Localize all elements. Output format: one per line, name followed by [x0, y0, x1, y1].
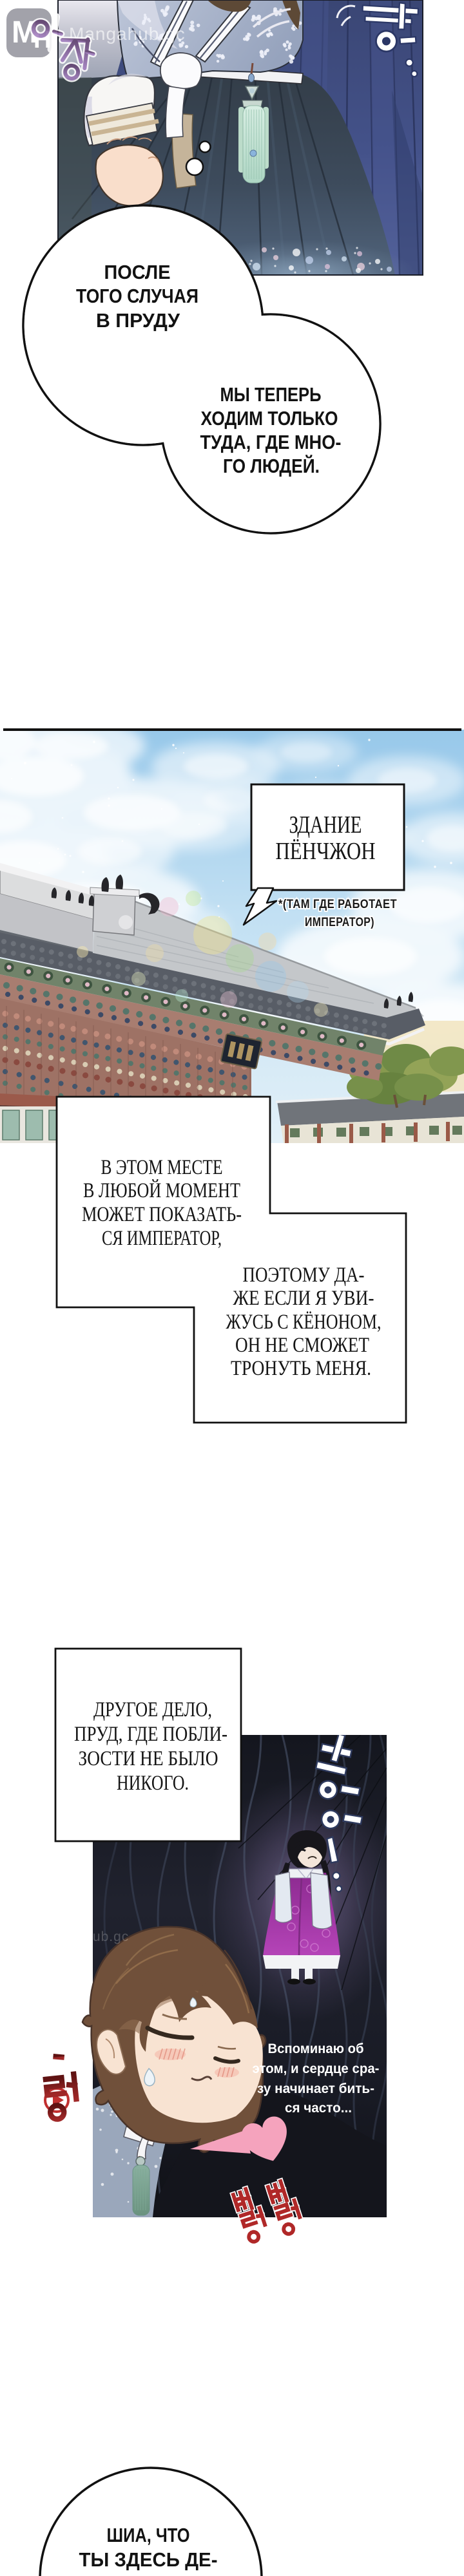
svg-text:*(ТАМ ГДЕ РАБОТАЕТ: *(ТАМ ГДЕ РАБОТАЕТ	[278, 898, 397, 911]
svg-text:ТУДА, ГДЕ МНО-: ТУДА, ГДЕ МНО-	[200, 431, 342, 453]
svg-text:ГО ЛЮДЕЙ.: ГО ЛЮДЕЙ.	[223, 454, 320, 477]
svg-text:МОЖЕТ ПОКАЗАТЬ-: МОЖЕТ ПОКАЗАТЬ-	[82, 1203, 242, 1226]
svg-text:ЖУСЬ С КЁНОНОМ,: ЖУСЬ С КЁНОНОМ,	[226, 1311, 382, 1334]
svg-text:ШИА, ЧТО: ШИА, ЧТО	[107, 2524, 190, 2546]
svg-text:В ЭТОМ МЕСТЕ: В ЭТОМ МЕСТЕ	[101, 1156, 223, 1179]
svg-text:ПРУД, ГДЕ ПОБЛИ-: ПРУД, ГДЕ ПОБЛИ-	[74, 1723, 227, 1746]
svg-text:ПОСЛЕ: ПОСЛЕ	[104, 261, 171, 283]
svg-text:ПОЭТОМУ ДА-: ПОЭТОМУ ДА-	[243, 1264, 365, 1287]
svg-text:НИКОГО.: НИКОГО.	[117, 1772, 189, 1795]
svg-text:ся часто...: ся часто...	[285, 2101, 352, 2116]
svg-text:ТРОНУТЬ МЕНЯ.: ТРОНУТЬ МЕНЯ.	[231, 1357, 371, 1380]
svg-text:ЗОСТИ НЕ БЫЛО: ЗОСТИ НЕ БЫЛО	[79, 1747, 218, 1770]
svg-text:МЫ ТЕПЕРЬ: МЫ ТЕПЕРЬ	[220, 383, 322, 406]
svg-text:Вспоминаю об: Вспоминаю об	[268, 2041, 364, 2056]
svg-text:ДРУГОЕ ДЕЛО,: ДРУГОЕ ДЕЛО,	[93, 1698, 212, 1721]
svg-text:В ЛЮБОЙ МОМЕНТ: В ЛЮБОЙ МОМЕНТ	[83, 1179, 240, 1202]
svg-text:СЯ ИМПЕРАТОР,: СЯ ИМПЕРАТОР,	[102, 1227, 222, 1250]
svg-text:ТЫ ЗДЕСЬ ДЕ-: ТЫ ЗДЕСЬ ДЕ-	[79, 2548, 218, 2571]
svg-text:ХОДИМ ТОЛЬКО: ХОДИМ ТОЛЬКО	[201, 407, 338, 430]
svg-text:В ПРУДУ: В ПРУДУ	[96, 309, 180, 332]
svg-text:Mangahub.gc: Mangahub.gc	[40, 1929, 129, 1944]
svg-text:ТОГО СЛУЧАЯ: ТОГО СЛУЧАЯ	[76, 285, 198, 307]
svg-text:зу начинает бить-: зу начинает бить-	[257, 2081, 374, 2096]
svg-text:ЗДАНИЕ: ЗДАНИЕ	[289, 811, 362, 838]
svg-text:ЖЕ ЕСЛИ Я УВИ-: ЖЕ ЕСЛИ Я УВИ-	[233, 1287, 374, 1310]
svg-text:ОН НЕ СМОЖЕТ: ОН НЕ СМОЖЕТ	[235, 1334, 369, 1357]
svg-text:ИМПЕРАТОР): ИМПЕРАТОР)	[305, 916, 374, 929]
svg-text:этом, и сердце сра-: этом, и сердце сра-	[253, 2061, 380, 2076]
svg-text:ПЁНЧЖОН: ПЁНЧЖОН	[276, 838, 376, 865]
